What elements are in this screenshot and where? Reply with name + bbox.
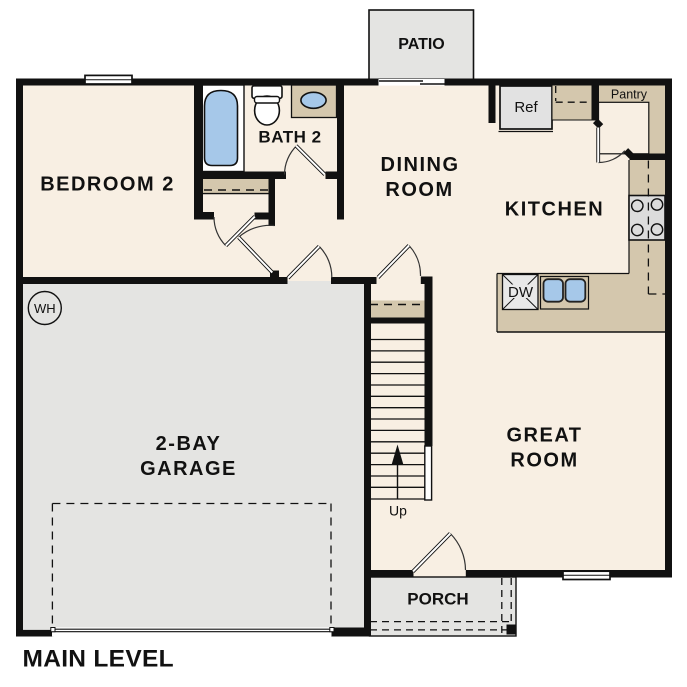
svg-text:BATH 2: BATH 2	[258, 128, 321, 147]
svg-text:PORCH: PORCH	[407, 590, 468, 609]
svg-text:GREAT: GREAT	[506, 425, 582, 447]
svg-text:WH: WH	[34, 301, 56, 316]
svg-text:Up: Up	[389, 503, 407, 519]
svg-text:DINING: DINING	[381, 154, 460, 176]
svg-text:GARAGE: GARAGE	[140, 458, 237, 480]
svg-text:MAIN LEVEL: MAIN LEVEL	[23, 646, 174, 673]
svg-text:BEDROOM 2: BEDROOM 2	[40, 174, 175, 196]
svg-text:DW: DW	[508, 284, 534, 301]
svg-text:Pantry: Pantry	[611, 88, 648, 102]
svg-text:2-BAY: 2-BAY	[156, 433, 222, 455]
svg-text:Ref: Ref	[514, 99, 538, 116]
svg-text:ROOM: ROOM	[385, 179, 453, 201]
svg-text:PATIO: PATIO	[398, 36, 445, 53]
svg-text:KITCHEN: KITCHEN	[505, 199, 604, 221]
svg-text:ROOM: ROOM	[510, 450, 578, 472]
